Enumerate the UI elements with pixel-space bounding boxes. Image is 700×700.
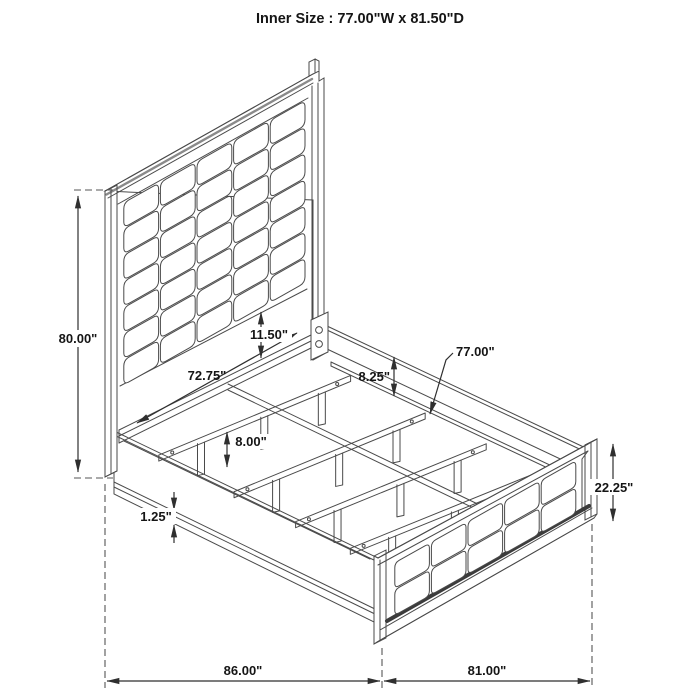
- dim-label-panel-width: 72.75": [188, 368, 227, 383]
- dim-label-rail-drop: 8.25": [359, 369, 390, 384]
- dim-label-headboard-height: 80.00": [59, 331, 98, 346]
- dim-label-leg-height: 8.00": [235, 434, 266, 449]
- dim-slat-leg-height: 8.00": [227, 432, 271, 467]
- dim-headboard-height: 80.00": [55, 190, 113, 478]
- bed-dimension-drawing: 80.00" 72.75" 11.50" 8.25" 77.00" 8.00": [0, 0, 700, 700]
- slat-leg: [454, 460, 461, 494]
- slat-leg: [397, 483, 404, 516]
- slat-screw-hole: [171, 451, 174, 454]
- left-side-rail: [114, 431, 378, 623]
- rail-bracket: [311, 312, 328, 360]
- dim-label-slat-width: 77.00": [456, 344, 495, 359]
- slat-screw-hole: [336, 382, 339, 385]
- slat-screw-hole: [362, 544, 365, 547]
- slat-screw-hole: [410, 420, 413, 423]
- dim-label-overall-width: 81.00": [468, 663, 507, 678]
- dim-label-headboard-gap: 11.50": [250, 327, 288, 342]
- dim-headboard-gap: 11.50": [245, 312, 292, 358]
- dim-label-footboard-height: 22.25": [595, 480, 634, 495]
- slat-leg: [393, 429, 400, 463]
- bed-dimension-diagram: 80.00" 72.75" 11.50" 8.25" 77.00" 8.00": [0, 0, 700, 700]
- slat-screw-hole: [307, 518, 310, 521]
- slat-leg: [197, 442, 204, 476]
- dim-side-rail-drop: 8.25": [359, 357, 394, 396]
- slat-screw-hole: [471, 451, 474, 454]
- bed-frame: [114, 326, 590, 623]
- slat-leg: [336, 453, 343, 487]
- slat-leg: [318, 392, 325, 426]
- slat-screw-hole: [246, 488, 249, 491]
- dim-label-overall-length: 86.00": [224, 663, 263, 678]
- diagram-title: Inner Size : 77.00"W x 81.50"D: [256, 11, 464, 27]
- dim-label-rail-trim: 1.25": [140, 509, 171, 524]
